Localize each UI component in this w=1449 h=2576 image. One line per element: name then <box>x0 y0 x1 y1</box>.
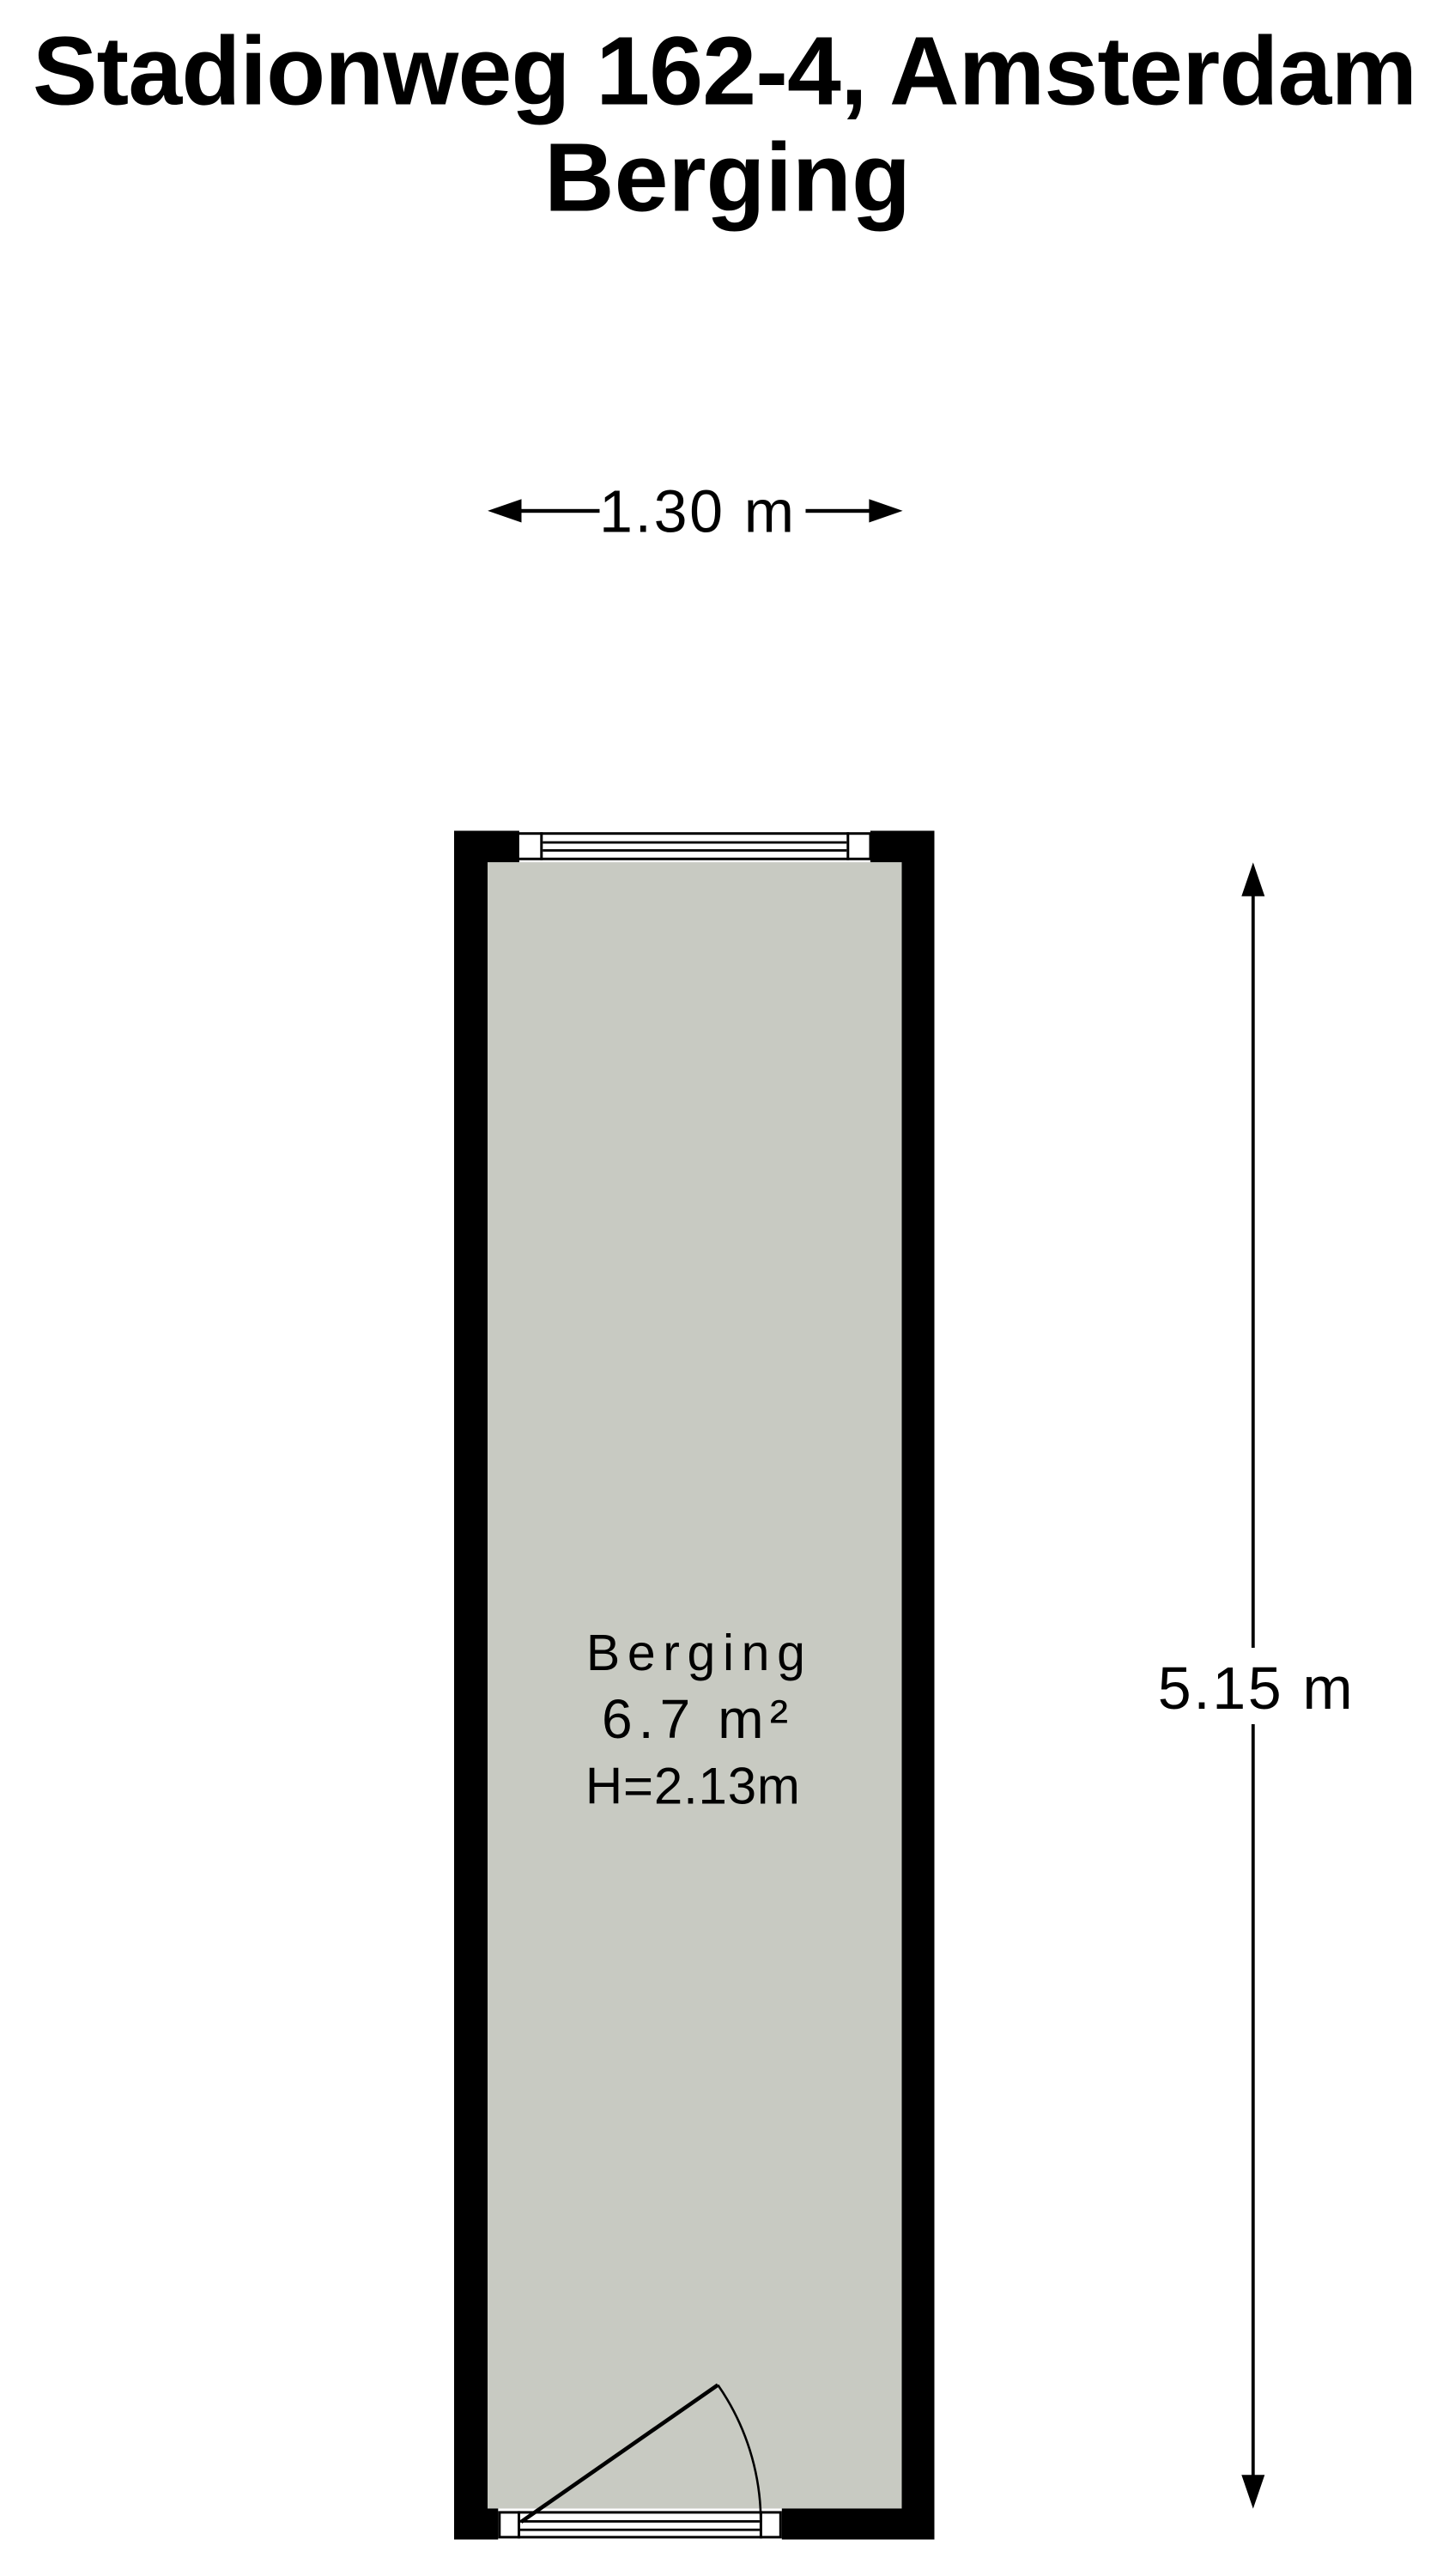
svg-text:Berging: Berging <box>544 124 911 232</box>
svg-text:H=2.13m: H=2.13m <box>585 1758 800 1815</box>
svg-text:5.15 m: 5.15 m <box>1158 1655 1353 1722</box>
svg-text:Stadionweg 162-4, Amsterdam: Stadionweg 162-4, Amsterdam <box>33 17 1417 125</box>
svg-text:1.30 m: 1.30 m <box>599 478 794 545</box>
